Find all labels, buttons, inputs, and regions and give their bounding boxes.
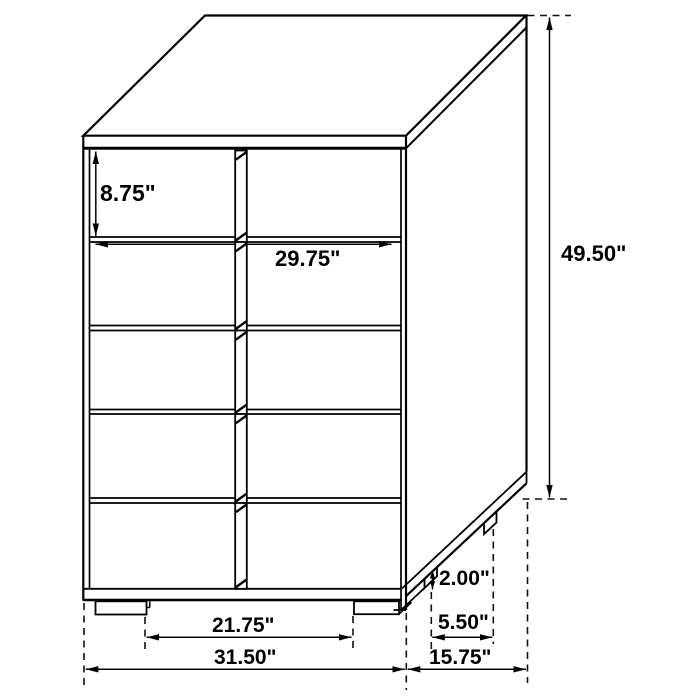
dim-label-overall-width: 31.50" [214,646,277,669]
dim-leg-height: 2.00" [433,567,490,590]
dim-label-overall-depth: 15.75" [429,646,492,669]
dim-front-leg-spacing: 21.75" [147,614,352,637]
dim-label-overall-height: 49.50" [561,241,626,266]
dim-label-leg-height: 2.00" [439,567,490,590]
dim-label-front-leg-spacing: 21.75" [212,614,275,637]
dim-label-drawer-width: 29.75" [275,246,340,271]
dim-top-drawer-height: 8.75" [96,152,156,237]
drawer-handle-strip [235,331,247,415]
drawer-handle-strip [235,503,247,589]
dim-overall-depth: 15.75" [408,646,526,669]
front-left-leg [96,601,150,614]
drawer-handle-strip [235,242,247,331]
dim-label-side-leg-spacing: 5.50" [438,611,489,634]
dim-overall-width: 31.50" [86,646,405,669]
dim-side-leg-spacing: 5.50" [432,611,492,637]
dim-label-top-drawer-height: 8.75" [100,180,156,206]
dimension-drawing-canvas: 29.75" [0,0,700,700]
chest-dimension-drawing: 29.75" [0,0,700,700]
drawer-handle-strip [235,414,247,503]
drawer-handle-strip [235,151,247,243]
drawer-handle-strips [235,151,247,589]
dim-overall-height: 49.50" [550,18,627,498]
chest-top-face [83,16,526,136]
